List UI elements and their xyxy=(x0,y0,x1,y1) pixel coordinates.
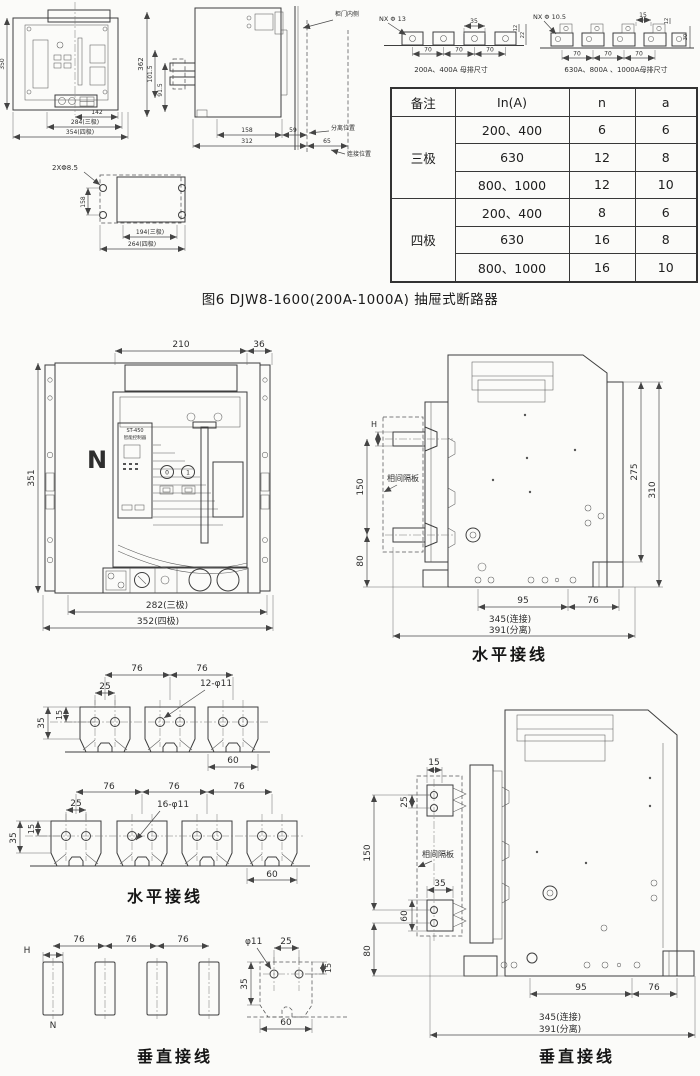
dim-b4-15: 15 xyxy=(27,824,36,834)
bus4-art xyxy=(25,814,310,866)
dim-bb-70b: 70 xyxy=(604,51,612,58)
label-nx13: NX Φ 13 xyxy=(379,15,406,23)
busbar-3pole-view: 76 76 25 12-φ11 35 15 60 xyxy=(20,655,310,780)
dim-v-345: 345(连接) xyxy=(539,1011,581,1023)
dim-b4-60: 60 xyxy=(266,870,278,880)
drawer-front-view: 350 142 284(三极) 354(四极) xyxy=(2,2,135,152)
horizontal-side-view: H 150 80 相间隔板 275 310 95 76 345(连接) 391(… xyxy=(345,340,700,667)
dim-vb-76c: 76 xyxy=(177,935,189,945)
dim-v-95: 95 xyxy=(575,983,586,993)
dim-354: 354(四极) xyxy=(66,128,94,136)
label-b3-holes: 12-φ11 xyxy=(200,679,232,689)
dim-264: 264(四极) xyxy=(128,240,156,248)
vertical-side-view: 15 25 150 35 60 80 相间隔板 95 76 345(连接) 39… xyxy=(360,683,700,1041)
dim-h: H xyxy=(371,420,377,429)
cell-in: 200、400 xyxy=(455,199,569,227)
cell-a: 10 xyxy=(635,254,697,282)
dim-b3-76b: 76 xyxy=(196,664,208,674)
label-2x85-holes: 2XΦ8.5 xyxy=(52,164,78,172)
label-v-partition: 相间隔板 xyxy=(422,849,454,859)
dim-b4-25: 25 xyxy=(70,799,81,809)
dim-284: 284(三极) xyxy=(71,118,99,126)
dim-ba-35: 35 xyxy=(470,18,478,25)
dim-vt-60: 60 xyxy=(280,1018,292,1028)
dim-v-25: 25 xyxy=(400,796,410,807)
caption-busbar-b: 630A、800A 、1000A母排尺寸 xyxy=(564,65,667,74)
dim-b3-15: 15 xyxy=(55,710,64,720)
dim-345: 345(连接) xyxy=(489,613,531,625)
dim-b4-76c: 76 xyxy=(233,782,245,792)
col-note: 备注 xyxy=(391,88,455,116)
label-b4-holes: 16-φ11 xyxy=(157,800,189,810)
breaker-front-view: N ST-450 智能控制器 0 1 210 36 351 282(三极) 35… xyxy=(25,335,320,647)
cell-a: 10 xyxy=(635,171,697,199)
dim-362: 362 xyxy=(137,57,145,70)
label-neutral-n: N xyxy=(87,446,107,474)
dim-b4-76b: 76 xyxy=(168,782,180,792)
label-partition: 相间隔板 xyxy=(387,473,419,483)
caption-vertical-right: 垂直接线 xyxy=(517,1043,637,1067)
dim-vt-25: 25 xyxy=(280,937,291,947)
dim-bb-30: 30 xyxy=(683,34,689,40)
bus3-art xyxy=(50,700,270,752)
dim-76: 76 xyxy=(587,596,599,606)
dim-vt-35: 35 xyxy=(240,978,250,989)
horiz-art xyxy=(383,355,623,587)
vert-dims: 15 25 150 35 60 80 相间隔板 95 76 345(连接) 39… xyxy=(363,758,695,1038)
vert-art xyxy=(417,710,694,976)
caption-vertical-left: 垂直接线 xyxy=(115,1043,235,1067)
dim-b3-25: 25 xyxy=(99,682,110,692)
dim-v-15: 15 xyxy=(428,758,439,768)
dim-b3-35: 35 xyxy=(37,717,47,728)
dim-v-150: 150 xyxy=(363,844,373,861)
dim-80: 80 xyxy=(356,555,366,567)
table-row: 四极 200、400 8 6 xyxy=(391,199,697,227)
dim-91-5: 91.5 xyxy=(157,83,164,97)
dim-v-80: 80 xyxy=(363,945,373,957)
dim-bb-70a: 70 xyxy=(573,51,581,58)
vertical-bars-view: 76 76 76 H N xyxy=(15,918,235,1033)
label-separate-pos: 分离位置 xyxy=(331,124,355,132)
drawer-front-dims: 350 142 284(三极) 354(四极) xyxy=(0,18,128,139)
dim-158: 158 xyxy=(241,127,253,134)
dim-ba-70a: 70 xyxy=(424,47,432,54)
col-in: In(A) xyxy=(455,88,569,116)
dim-vb-76a: 76 xyxy=(73,935,85,945)
cell-in: 630 xyxy=(455,144,569,172)
dim-cut-158: 158 xyxy=(80,196,87,208)
dim-v-60: 60 xyxy=(400,910,410,922)
col-a: a xyxy=(635,88,697,116)
vtab-dims: φ11 25 15 35 60 xyxy=(240,937,333,1033)
dim-vb-76b: 76 xyxy=(125,935,137,945)
cell-n: 12 xyxy=(569,171,635,199)
caption-horizontal-right: 水平接线 xyxy=(450,641,570,665)
vbars-art xyxy=(43,958,219,1019)
dim-bb-12: 12 xyxy=(664,18,670,24)
dim-ba-22: 22 xyxy=(520,32,526,38)
vbars-dims: 76 76 76 H N xyxy=(24,935,209,1031)
dim-v-391: 391(分离) xyxy=(539,1023,581,1035)
label-btn-off: 0 xyxy=(165,470,169,477)
table-row: 三极 200、400 6 6 xyxy=(391,116,697,144)
dim-ba-70c: 70 xyxy=(486,47,494,54)
drawer-side-art xyxy=(170,6,348,155)
dim-275: 275 xyxy=(630,463,640,480)
dim-210: 210 xyxy=(172,340,189,350)
label-controller: ST-450 xyxy=(126,428,143,434)
dim-351: 351 xyxy=(27,469,37,486)
drawer-side-view: 362 101.5 91.5 158 59 312 65 柜门内侧 分离位置 连… xyxy=(135,0,385,162)
busbar-b-art xyxy=(540,24,694,48)
cell-a: 8 xyxy=(635,144,697,172)
drawer-side-dims: 362 101.5 91.5 158 59 312 65 柜门内侧 分离位置 连… xyxy=(137,10,371,158)
dim-bb-70c: 70 xyxy=(635,51,643,58)
cell-in: 800、1000 xyxy=(455,171,569,199)
cell-a: 8 xyxy=(635,226,697,254)
dim-194: 194(三极) xyxy=(136,228,164,236)
dim-vt-15: 15 xyxy=(324,963,333,973)
label-vt-hole: φ11 xyxy=(245,937,262,947)
dim-150: 150 xyxy=(356,478,366,495)
cell-n: 8 xyxy=(569,199,635,227)
bus4-dims: 76 76 76 25 16-φ11 15 35 60 xyxy=(9,782,297,884)
dim-bb-15: 15 xyxy=(639,12,647,19)
dim-b4-35: 35 xyxy=(9,832,19,843)
figure-caption: 图6 DJW8-1600(200A-1000A) 抽屉式断路器 xyxy=(150,288,550,308)
spec-header-row: 备注 In(A) n a xyxy=(391,88,697,116)
cell-n: 6 xyxy=(569,116,635,144)
dim-282: 282(三极) xyxy=(146,599,188,611)
breaker-front-art xyxy=(45,363,270,593)
dim-142: 142 xyxy=(91,109,103,116)
dim-95: 95 xyxy=(517,596,528,606)
datasheet-page: 350 142 284(三极) 354(四极) 362 101.5 91.5 1… xyxy=(0,0,700,1076)
col-n: n xyxy=(569,88,635,116)
busbar-200-400-view: NX Φ 13 35 70 70 70 12 22 200A、400A 母排尺寸 xyxy=(378,8,530,90)
label-btn-on: 1 xyxy=(186,470,190,477)
busbar-630-1000-view: NX Φ 10.5 15 12 30 70 70 70 630A、800A 、1… xyxy=(532,8,700,90)
label-vb-n: N xyxy=(50,1021,57,1031)
horiz-dims: H 150 80 相间隔板 275 310 95 76 345(连接) 391(… xyxy=(356,382,663,638)
cell-n: 16 xyxy=(569,226,635,254)
cutout-view: 2XΦ8.5 158 194(三极) 264(四极) xyxy=(40,158,260,260)
caption-busbar-a: 200A、400A 母排尺寸 xyxy=(414,65,488,74)
dim-391: 391(分离) xyxy=(489,624,531,636)
cell-pole3: 三极 xyxy=(391,116,455,199)
dim-ba-70b: 70 xyxy=(455,47,463,54)
label-controller-sub: 智能控制器 xyxy=(124,434,147,441)
dim-59: 59 xyxy=(289,127,297,134)
dim-101-5: 101.5 xyxy=(147,65,154,82)
cell-in: 800、1000 xyxy=(455,254,569,282)
cell-n: 12 xyxy=(569,144,635,172)
dim-b4-76a: 76 xyxy=(103,782,115,792)
dim-350: 350 xyxy=(0,58,6,70)
dim-310: 310 xyxy=(648,481,658,498)
dim-v-76: 76 xyxy=(648,983,660,993)
cell-a: 6 xyxy=(635,116,697,144)
dim-ba-12: 12 xyxy=(513,25,519,31)
label-cabinet-door: 柜门内侧 xyxy=(335,10,359,18)
dim-65: 65 xyxy=(323,138,331,145)
dim-b3-76a: 76 xyxy=(131,664,143,674)
cell-a: 6 xyxy=(635,199,697,227)
dim-v-35: 35 xyxy=(434,879,445,889)
label-nx105: NX Φ 10.5 xyxy=(533,13,566,21)
label-connect-pos: 连接位置 xyxy=(347,150,371,158)
dim-36: 36 xyxy=(253,340,265,350)
cell-in: 200、400 xyxy=(455,116,569,144)
dim-352: 352(四极) xyxy=(137,615,179,627)
caption-horizontal-left: 水平接线 xyxy=(105,883,225,907)
dim-b3-60: 60 xyxy=(227,756,239,766)
vertical-tab-detail: φ11 25 15 35 60 xyxy=(235,905,360,1045)
spec-table: 备注 In(A) n a 三极 200、400 6 6 630 12 8 800… xyxy=(390,87,698,283)
dim-vb-h: H xyxy=(24,946,31,956)
cell-in: 630 xyxy=(455,226,569,254)
cell-n: 16 xyxy=(569,254,635,282)
cell-pole4: 四极 xyxy=(391,199,455,282)
dim-312: 312 xyxy=(241,138,253,145)
cutout-art xyxy=(100,175,186,223)
drawer-front-art xyxy=(13,2,118,115)
